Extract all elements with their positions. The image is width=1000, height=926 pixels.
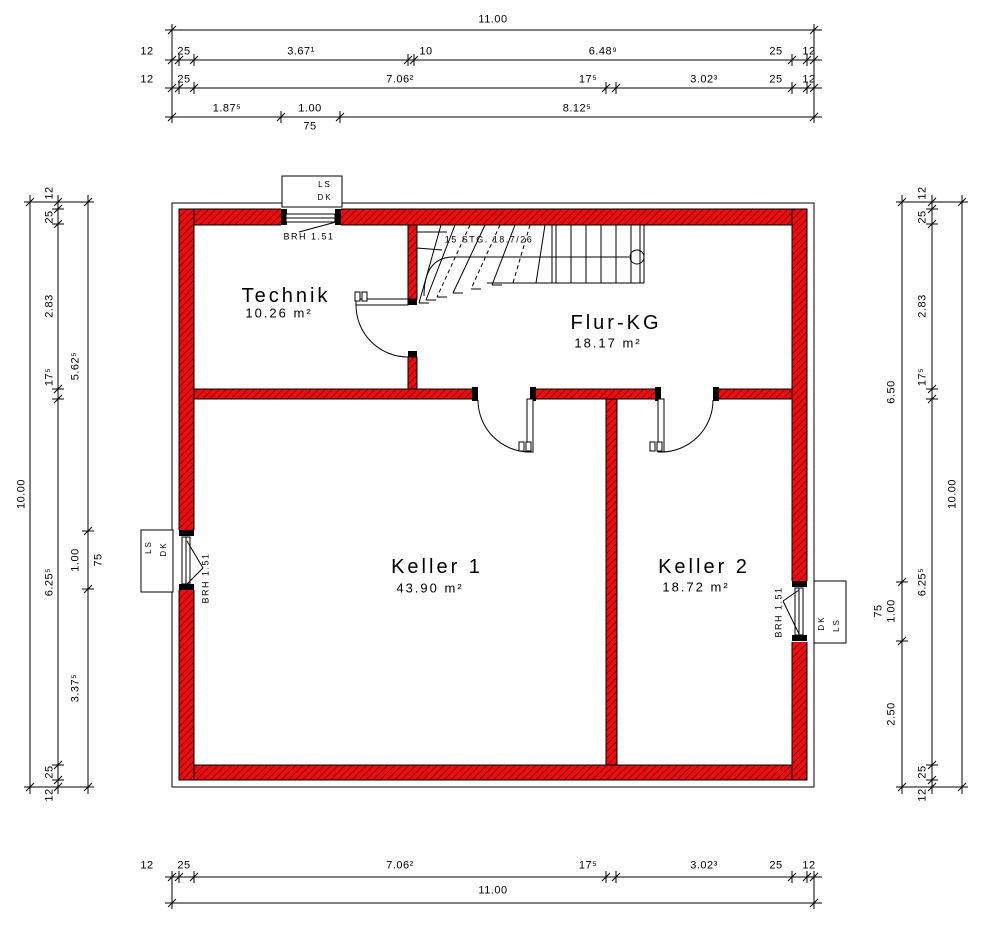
window-right-box (814, 581, 846, 643)
dim-right-i-sub: 75 (874, 604, 885, 617)
wall-left (179, 209, 194, 780)
door-keller2 (650, 399, 713, 452)
dim-left-i0: 5.62⁵ (71, 352, 82, 380)
dim-top-r2-0: 12 (140, 47, 153, 58)
dim-top-r2-2: 3.67¹ (287, 47, 315, 58)
dim-top-r3-1: 25 (177, 75, 190, 86)
room-label-technik: Technik (242, 286, 331, 306)
window-right-label-ls: LS (833, 618, 841, 632)
dim-right-m0: 12 (918, 186, 929, 199)
door-keller1 (478, 399, 533, 452)
window-left-label-ls: LS (145, 540, 153, 554)
dim-bot-r1-1: 25 (177, 861, 190, 872)
dim-top-r4-sub: 75 (303, 122, 316, 133)
wall-technik-upper (408, 225, 417, 299)
dim-top-r3-3: 17⁵ (579, 75, 597, 86)
window-top-box (282, 176, 342, 207)
room-area-keller2: 18.72 m² (662, 581, 729, 594)
dim-right-i1: 1.00 (887, 599, 898, 622)
window-right-label-dk: DK (818, 615, 826, 630)
dim-right-m3: 17⁵ (918, 368, 929, 386)
dim-left-m2: 2.83 (45, 294, 56, 317)
dim-top-r3-6: 12 (802, 75, 815, 86)
dim-right-i0: 6.50 (887, 380, 898, 403)
dim-bot-r1-0: 12 (140, 861, 153, 872)
room-area-technik: 10.26 m² (245, 307, 312, 320)
dim-top-r2-5: 25 (769, 47, 782, 58)
dim-right-total: 10.00 (948, 479, 959, 509)
dim-top-r4-1: 1.00 (298, 104, 321, 115)
dim-top-r2-6: 12 (802, 47, 815, 58)
wall-right (792, 209, 807, 780)
room-area-flur-kg: 18.17 m² (574, 337, 641, 350)
window-left-sill-label: BRH 1.51 (202, 552, 211, 603)
dim-top-r3-2: 7.06² (386, 75, 414, 86)
dim-right-m6: 12 (918, 788, 929, 801)
dim-top-r4-2: 8.12⁵ (563, 104, 591, 115)
dim-top-r2-4: 6.48⁹ (589, 47, 618, 58)
dim-top-total: 11.00 (478, 15, 507, 26)
dim-left-m4: 6.25⁵ (45, 568, 56, 596)
dim-bot-r1-2: 7.06² (386, 861, 414, 872)
wall-technik-stub (408, 357, 417, 389)
room-label-flur-kg: Flur-KG (571, 313, 662, 333)
wall-bottom (179, 765, 807, 780)
dim-top-r2-1: 25 (177, 47, 190, 58)
wall-top (179, 209, 807, 225)
room-area-keller1: 43.90 m² (396, 582, 463, 595)
dim-bot-r1-6: 12 (802, 861, 815, 872)
floorplan-drawing (0, 0, 1000, 926)
dim-left-m1: 25 (45, 210, 56, 223)
dim-bot-r1-3: 17⁵ (579, 861, 597, 872)
dim-top-r4-0: 1.87⁵ (213, 104, 241, 115)
room-label-keller1: Keller 1 (391, 557, 483, 577)
floorplan-canvas: 11.00 12 25 3.67¹ 10 6.48⁹ 25 12 12 25 7… (0, 0, 1000, 926)
dim-bot-r1-4: 3.02³ (690, 861, 718, 872)
dim-top-r2-3: 10 (419, 47, 432, 58)
dim-top-r3-5: 25 (769, 75, 782, 86)
window-top-sill-label: BRH 1.51 (283, 233, 334, 242)
window-left-label-dk: DK (160, 541, 168, 556)
dim-left-m0: 12 (45, 186, 56, 199)
dim-left-total: 10.00 (17, 479, 28, 509)
dim-right-m1: 25 (918, 210, 929, 223)
door-technik (355, 292, 408, 357)
dim-bot-r1-5: 25 (769, 861, 782, 872)
dim-left-m6: 12 (45, 788, 56, 801)
dim-right-m2: 2.83 (918, 294, 929, 317)
dim-left-m3: 17⁵ (45, 368, 56, 386)
dim-left-m5: 25 (45, 765, 56, 778)
dim-right-i2: 2.50 (887, 702, 898, 725)
room-label-keller2: Keller 2 (658, 557, 750, 577)
dim-bot-total: 11.00 (478, 886, 507, 897)
dim-left-i-sub: 75 (94, 553, 105, 566)
stair-walkline-end (630, 250, 644, 264)
dim-top-r3-4: 3.02³ (690, 75, 718, 86)
window-right-sill-label: BRH 1.51 (775, 586, 784, 637)
dim-left-i1: 1.00 (71, 548, 82, 571)
dim-left-i2: 3.37⁵ (71, 674, 82, 702)
dim-right-m4: 6.25⁵ (918, 568, 929, 596)
dim-right-m5: 25 (918, 765, 929, 778)
window-top-label-ls: LS (318, 181, 332, 189)
wall-keller-divider (606, 399, 617, 765)
window-top-label-dk: DK (317, 194, 332, 202)
dim-top-r3-0: 12 (140, 75, 153, 86)
stair-label: 15 STG. 18.7/26 (445, 236, 534, 245)
